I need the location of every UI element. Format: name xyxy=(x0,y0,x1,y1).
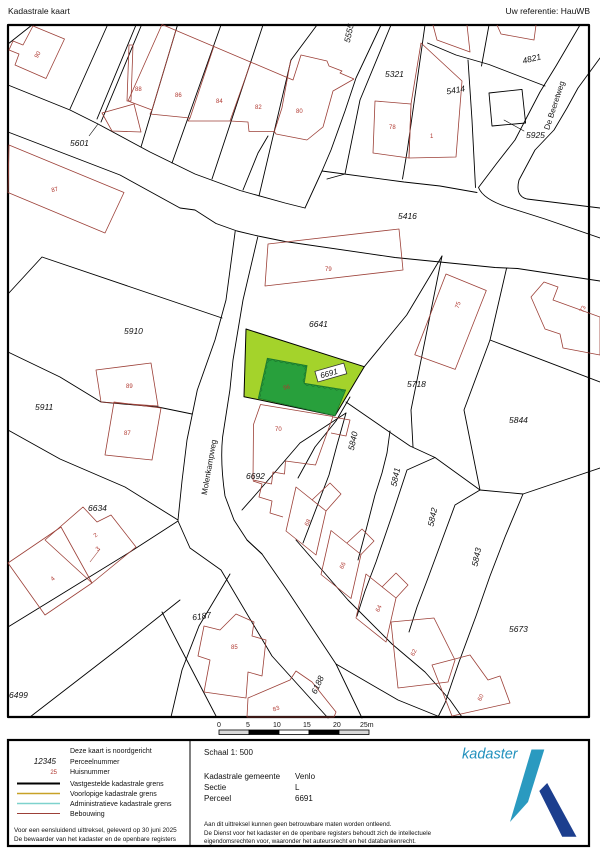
svg-text:85: 85 xyxy=(231,645,238,651)
svg-text:Deze kaart is noordgericht: Deze kaart is noordgericht xyxy=(70,748,152,755)
svg-text:5321: 5321 xyxy=(385,69,404,79)
svg-text:6634: 6634 xyxy=(88,503,107,513)
svg-text:5842: 5842 xyxy=(426,507,440,528)
svg-text:25: 25 xyxy=(50,770,57,776)
svg-text:5910: 5910 xyxy=(124,326,143,336)
svg-text:78: 78 xyxy=(389,125,396,131)
svg-text:82: 82 xyxy=(255,105,262,111)
svg-text:15: 15 xyxy=(303,722,311,729)
svg-text:66: 66 xyxy=(339,561,348,570)
svg-text:75: 75 xyxy=(455,301,463,310)
svg-text:87: 87 xyxy=(124,431,131,437)
svg-text:83: 83 xyxy=(272,705,281,713)
svg-text:Kadastrale kaart: Kadastrale kaart xyxy=(8,6,71,16)
svg-text:Kadastrale gemeente: Kadastrale gemeente xyxy=(204,772,281,781)
svg-text:Administratieve kadastrale gre: Administratieve kadastrale grens xyxy=(70,801,172,808)
svg-text:De Beeretweg: De Beeretweg xyxy=(542,80,566,131)
svg-text:20: 20 xyxy=(333,722,341,729)
svg-text:4: 4 xyxy=(50,576,57,583)
svg-text:Venlo: Venlo xyxy=(295,772,316,781)
svg-text:5414: 5414 xyxy=(445,83,466,96)
svg-text:6691: 6691 xyxy=(295,794,313,803)
svg-text:5925: 5925 xyxy=(526,130,545,140)
svg-text:86: 86 xyxy=(175,93,182,99)
svg-text:0: 0 xyxy=(217,722,221,729)
svg-text:6641: 6641 xyxy=(309,319,328,329)
svg-text:84: 84 xyxy=(216,99,223,105)
svg-text:2: 2 xyxy=(93,532,100,539)
svg-text:Voorlopige kadastrale grens: Voorlopige kadastrale grens xyxy=(70,791,157,798)
svg-text:L: L xyxy=(295,783,300,792)
svg-text:Schaal 1: 500: Schaal 1: 500 xyxy=(204,748,253,757)
svg-text:Uw referentie: HauWB: Uw referentie: HauWB xyxy=(505,6,590,16)
svg-text:5673: 5673 xyxy=(509,624,528,634)
svg-text:64: 64 xyxy=(375,604,384,613)
svg-text:5601: 5601 xyxy=(70,138,89,148)
svg-text:Voor een eensluidend uittrekse: Voor een eensluidend uittreksel, gelever… xyxy=(14,827,177,834)
svg-text:kadaster: kadaster xyxy=(462,747,519,763)
svg-text:5911: 5911 xyxy=(35,402,54,412)
svg-text:6499: 6499 xyxy=(9,690,28,700)
svg-text:Huisnummer: Huisnummer xyxy=(70,769,110,776)
svg-text:88: 88 xyxy=(135,87,142,93)
svg-text:89: 89 xyxy=(126,384,133,390)
svg-text:Vastgestelde kadastrale grens: Vastgestelde kadastrale grens xyxy=(70,781,164,788)
svg-text:3: 3 xyxy=(95,546,102,553)
svg-text:5841: 5841 xyxy=(389,467,403,488)
svg-text:Aan dit uittreksel kunnen geen: Aan dit uittreksel kunnen geen betrouwba… xyxy=(204,821,392,828)
svg-text:6187: 6187 xyxy=(192,610,212,623)
svg-text:62: 62 xyxy=(410,648,419,657)
svg-text:5416: 5416 xyxy=(398,211,417,221)
svg-text:5718: 5718 xyxy=(407,379,426,389)
svg-text:5843: 5843 xyxy=(470,547,484,568)
svg-text:25m: 25m xyxy=(360,722,374,729)
svg-text:5844: 5844 xyxy=(509,415,528,425)
svg-text:6692: 6692 xyxy=(246,471,265,481)
svg-text:79: 79 xyxy=(325,267,332,273)
svg-text:Molenkampweg: Molenkampweg xyxy=(200,439,219,496)
svg-text:Sectie: Sectie xyxy=(204,783,227,792)
svg-text:87: 87 xyxy=(51,186,60,194)
svg-text:70: 70 xyxy=(275,427,282,433)
svg-text:6188: 6188 xyxy=(309,674,326,696)
svg-text:Perceel: Perceel xyxy=(204,794,231,803)
svg-text:Bebouwing: Bebouwing xyxy=(70,811,105,818)
svg-text:1: 1 xyxy=(430,134,434,140)
svg-text:De Dienst voor het kadaster en: De Dienst voor het kadaster en de openba… xyxy=(204,830,432,837)
svg-text:12345: 12345 xyxy=(34,757,57,766)
svg-text:90: 90 xyxy=(34,50,43,59)
svg-text:eigendomsrechten voor, waarond: eigendomsrechten voor, waaronder het aut… xyxy=(204,838,416,845)
svg-text:4821: 4821 xyxy=(521,51,542,65)
svg-text:5: 5 xyxy=(246,722,250,729)
svg-text:10: 10 xyxy=(273,722,281,729)
svg-text:80: 80 xyxy=(296,109,303,115)
svg-text:60: 60 xyxy=(477,693,486,702)
svg-text:5840: 5840 xyxy=(346,430,360,451)
svg-text:De bewaarder van het kadaster: De bewaarder van het kadaster en de open… xyxy=(14,836,176,843)
svg-text:Perceelnummer: Perceelnummer xyxy=(70,759,120,766)
